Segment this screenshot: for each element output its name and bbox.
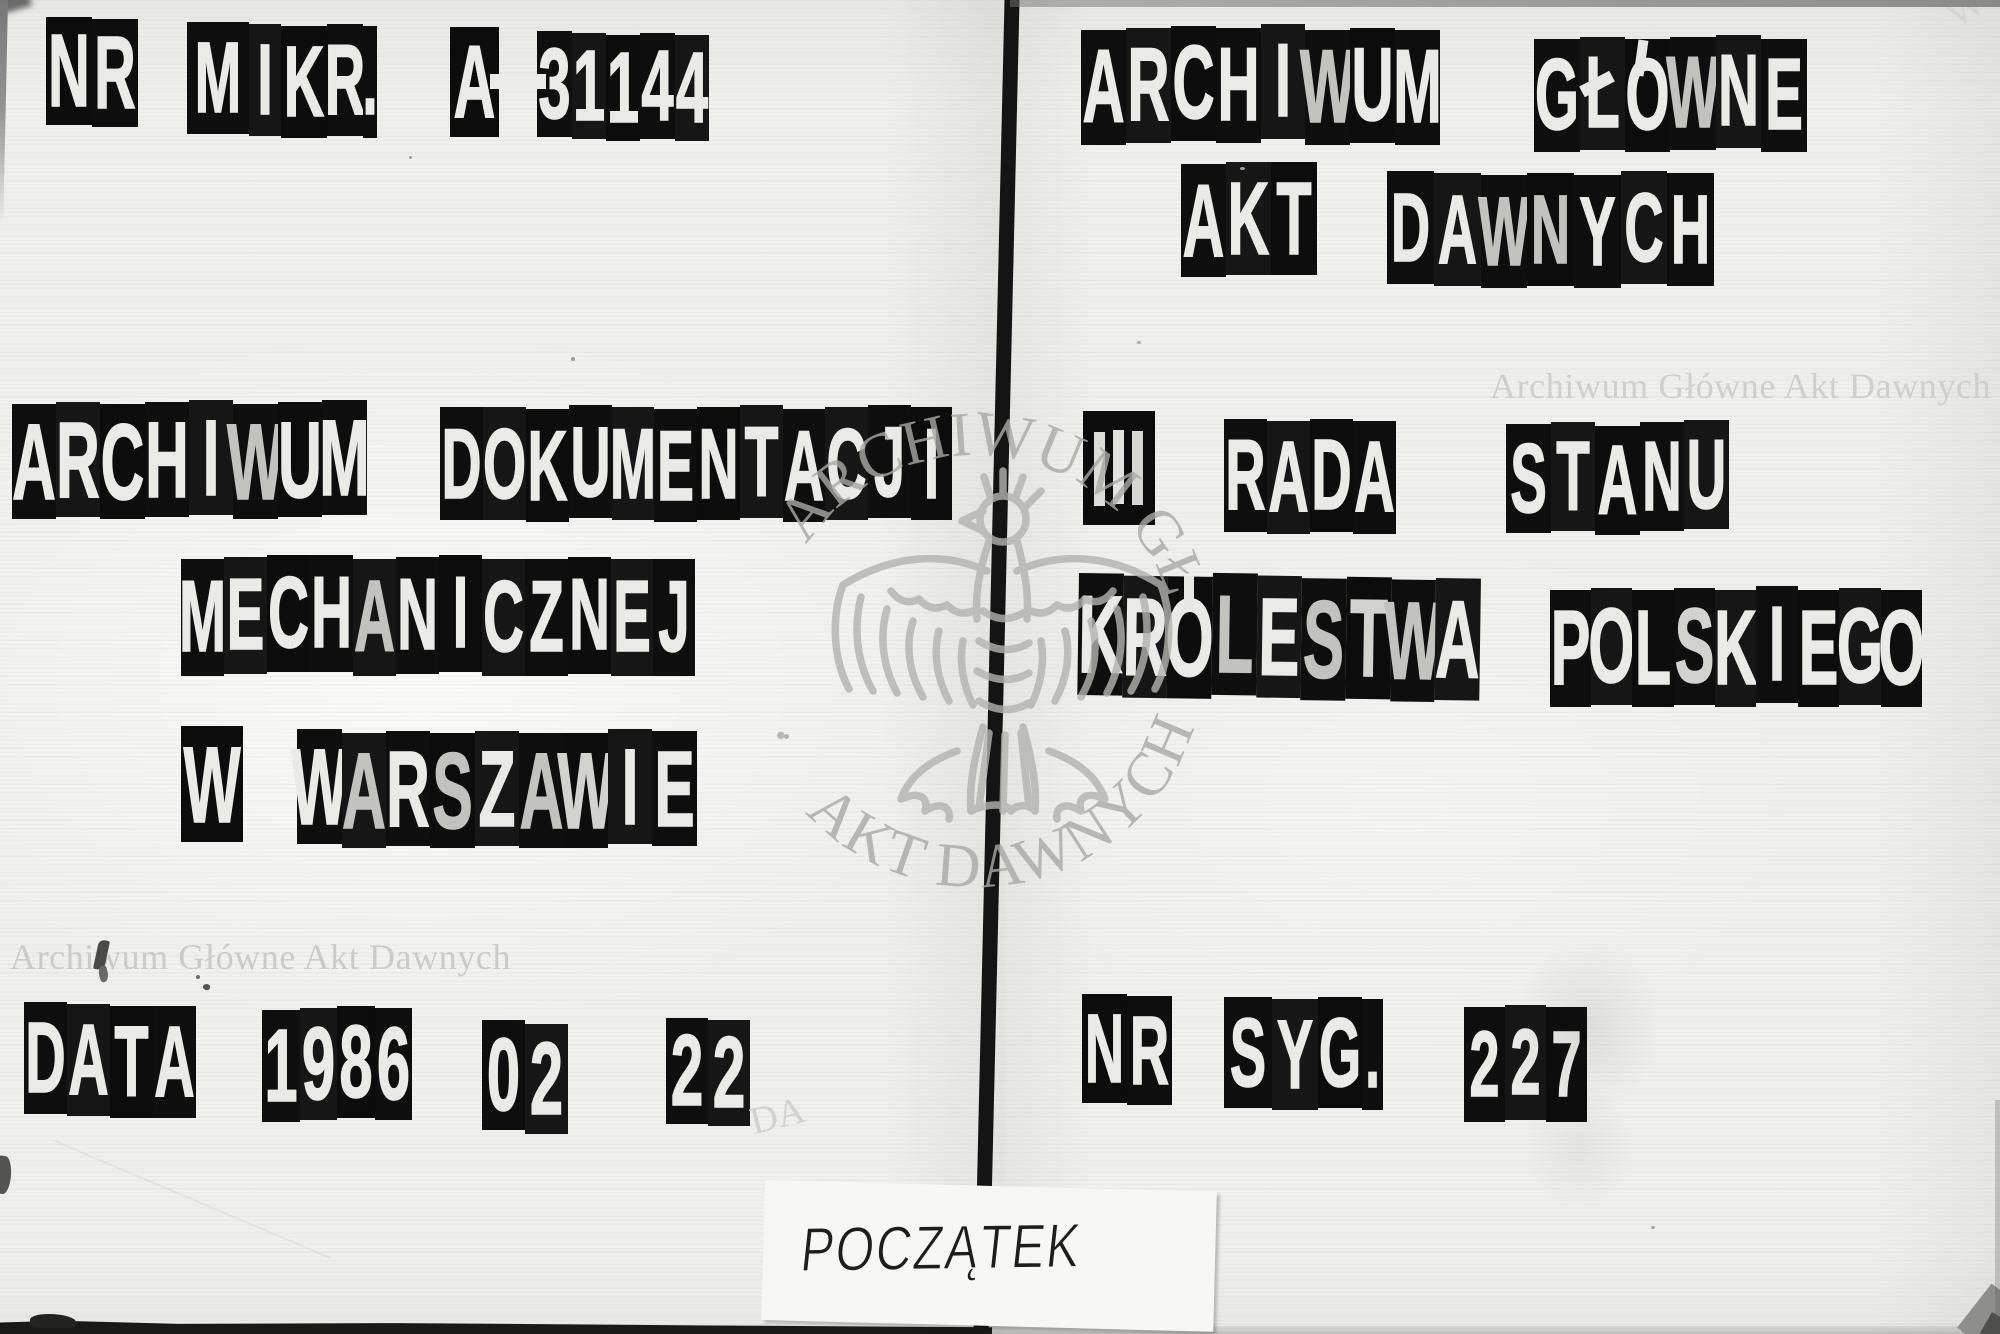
- svg-text:ARCHIWUM GŁÓWNE: ARCHIWUM GŁÓWNE: [675, 357, 1221, 604]
